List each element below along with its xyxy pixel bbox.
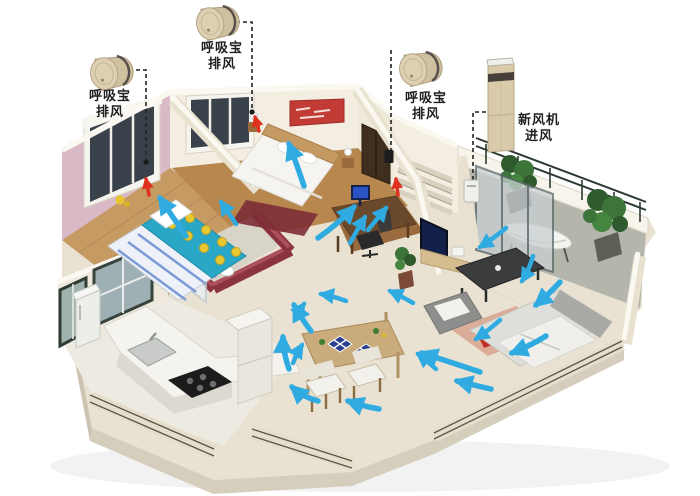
label-exhaust-3-line2: 排风 <box>396 106 456 122</box>
wall-unit-exhaust-3 <box>385 150 394 163</box>
label-exhaust-2-line2: 排风 <box>192 56 252 72</box>
fridge <box>72 284 100 348</box>
balcony <box>458 138 648 272</box>
floorplan-illustration <box>0 0 700 496</box>
label-exhaust-1: 呼吸宝 排风 <box>80 88 140 120</box>
label-exhaust-3-line1: 呼吸宝 <box>396 90 456 106</box>
device-exhaust-3-icon <box>397 48 445 88</box>
label-exhaust-1-line2: 排风 <box>80 104 140 120</box>
label-intake: 新风机 进风 <box>512 112 566 144</box>
label-intake-line2: 进风 <box>512 128 566 144</box>
ventilation-floorplan-diagram: 呼吸宝 排风 呼吸宝 排风 呼吸宝 排风 新风机 进风 <box>0 0 700 496</box>
label-intake-line1: 新风机 <box>512 112 566 128</box>
device-exhaust-1-icon <box>88 52 136 92</box>
exhaust-arrow <box>396 179 398 195</box>
label-exhaust-3: 呼吸宝 排风 <box>396 90 456 122</box>
mount-dot-exhaust-2 <box>249 109 254 114</box>
floor-unit-intake <box>464 180 479 202</box>
label-exhaust-1-line1: 呼吸宝 <box>80 88 140 104</box>
label-exhaust-2: 呼吸宝 排风 <box>192 40 252 72</box>
label-exhaust-2-line1: 呼吸宝 <box>192 40 252 56</box>
device-intake-icon <box>487 58 514 152</box>
mount-dot-exhaust-1 <box>143 159 148 164</box>
toy <box>116 196 125 205</box>
device-exhaust-2-icon <box>194 2 242 42</box>
lamp-right <box>345 149 352 156</box>
nightstand-right <box>342 158 354 168</box>
monitor <box>352 186 369 199</box>
